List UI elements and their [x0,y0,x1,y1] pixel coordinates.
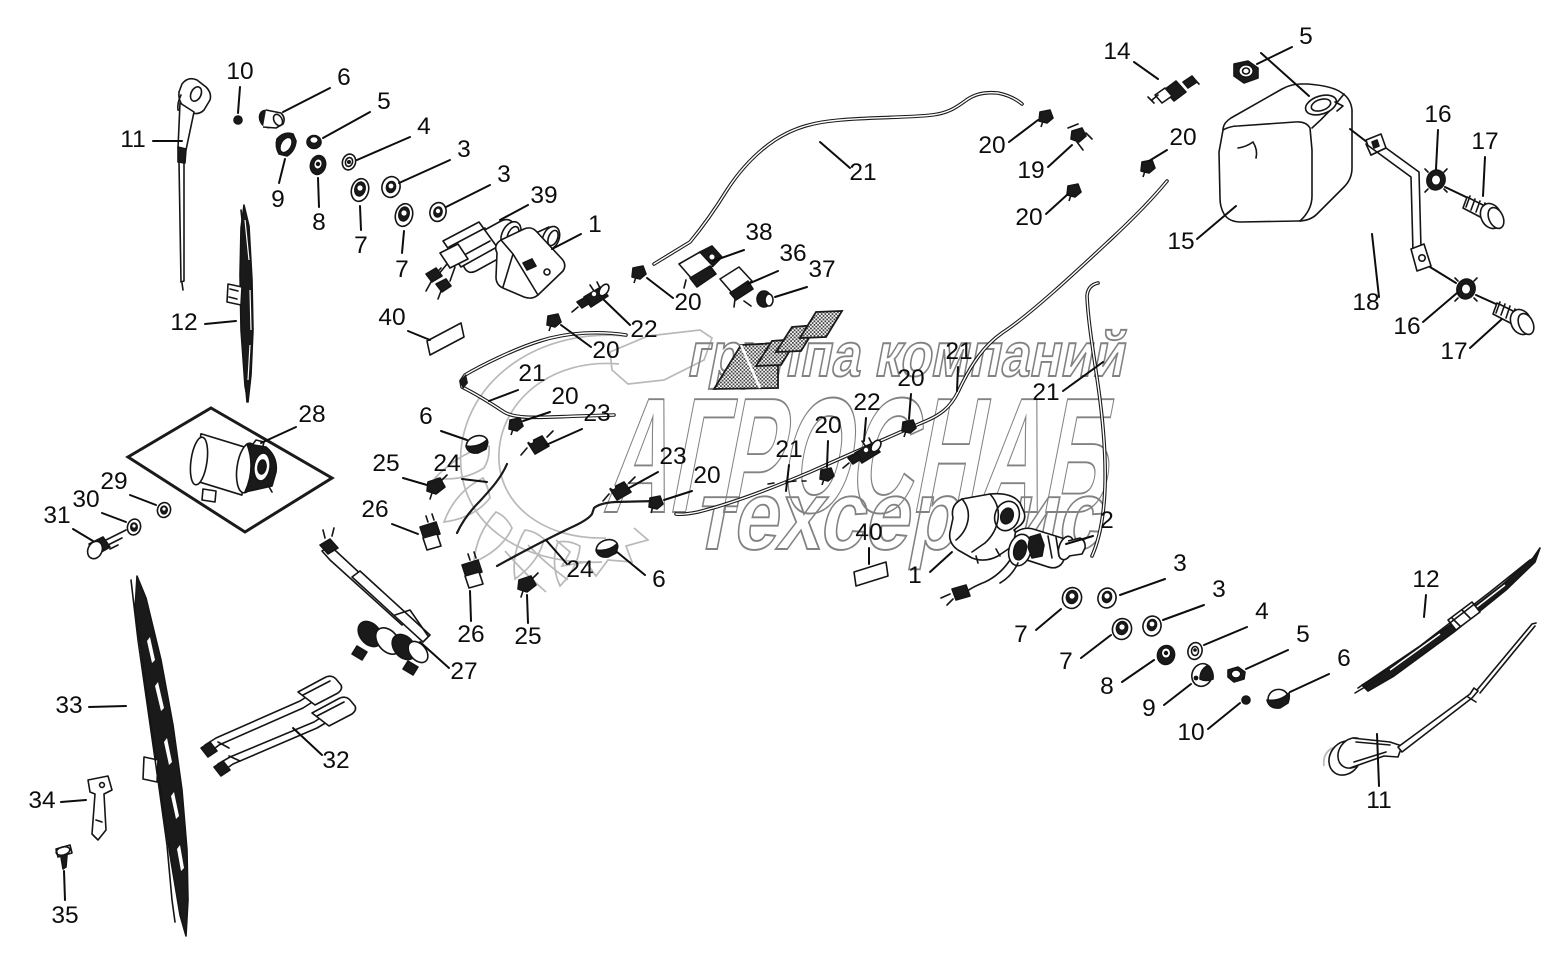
svg-text:16: 16 [1393,313,1420,340]
svg-text:7: 7 [395,256,409,283]
svg-text:17: 17 [1440,338,1467,365]
svg-text:20: 20 [693,462,720,489]
svg-text:16: 16 [1424,101,1451,128]
svg-text:26: 26 [361,496,388,523]
svg-text:14: 14 [1103,38,1130,65]
svg-text:5: 5 [1299,23,1313,50]
svg-text:20: 20 [1169,124,1196,151]
svg-text:40: 40 [855,519,882,546]
svg-text:40: 40 [378,304,405,331]
svg-text:3: 3 [1173,550,1187,577]
svg-text:9: 9 [271,186,285,213]
svg-text:35: 35 [51,902,78,929]
svg-text:6: 6 [337,64,351,91]
svg-text:5: 5 [377,88,391,115]
svg-text:12: 12 [170,309,197,336]
svg-text:20: 20 [592,337,619,364]
svg-text:21: 21 [849,159,876,186]
svg-text:3: 3 [457,136,471,163]
svg-text:1: 1 [588,211,602,238]
svg-text:29: 29 [100,468,127,495]
svg-text:1: 1 [908,562,922,589]
svg-text:21: 21 [775,436,802,463]
svg-text:18: 18 [1352,289,1379,316]
svg-text:37: 37 [808,256,835,283]
svg-text:3: 3 [497,161,511,188]
svg-text:11: 11 [1366,787,1391,814]
svg-text:20: 20 [814,412,841,439]
svg-text:21: 21 [945,338,972,365]
svg-text:19: 19 [1017,157,1044,184]
svg-text:22: 22 [853,389,880,416]
svg-text:20: 20 [897,365,924,392]
svg-text:12: 12 [1412,566,1439,593]
svg-text:27: 27 [450,658,477,685]
svg-text:6: 6 [1337,645,1351,672]
svg-text:9: 9 [1142,695,1156,722]
svg-text:21: 21 [1032,379,1059,406]
svg-text:6: 6 [419,403,433,430]
svg-text:23: 23 [659,443,686,470]
svg-text:8: 8 [312,209,326,236]
svg-text:31: 31 [43,502,70,529]
svg-text:2: 2 [1100,507,1114,534]
svg-text:39: 39 [530,182,557,209]
svg-text:24: 24 [433,450,460,477]
svg-text:24: 24 [566,556,593,583]
svg-text:33: 33 [55,692,82,719]
svg-text:15: 15 [1167,228,1194,255]
svg-text:5: 5 [1296,621,1310,648]
svg-text:32: 32 [322,747,349,774]
svg-text:7: 7 [354,232,368,259]
svg-text:28: 28 [298,401,325,428]
svg-text:21: 21 [518,360,545,387]
svg-text:23: 23 [583,400,610,427]
svg-text:20: 20 [551,383,578,410]
svg-text:20: 20 [1015,204,1042,231]
svg-text:36: 36 [779,240,806,267]
svg-text:6: 6 [652,566,666,593]
svg-text:7: 7 [1014,621,1028,648]
svg-text:4: 4 [1255,598,1269,625]
svg-text:25: 25 [372,450,399,477]
svg-text:30: 30 [72,486,99,513]
svg-text:25: 25 [514,623,541,650]
svg-text:4: 4 [417,113,431,140]
svg-text:10: 10 [226,58,253,85]
svg-text:17: 17 [1471,128,1498,155]
svg-text:8: 8 [1100,673,1114,700]
svg-text:11: 11 [120,126,145,153]
svg-text:10: 10 [1177,719,1204,746]
svg-text:7: 7 [1059,648,1073,675]
svg-text:22: 22 [630,316,657,343]
svg-text:34: 34 [28,787,55,814]
svg-text:20: 20 [674,289,701,316]
svg-text:3: 3 [1212,576,1226,603]
svg-text:38: 38 [745,219,772,246]
svg-text:26: 26 [457,621,484,648]
svg-text:20: 20 [978,132,1005,159]
